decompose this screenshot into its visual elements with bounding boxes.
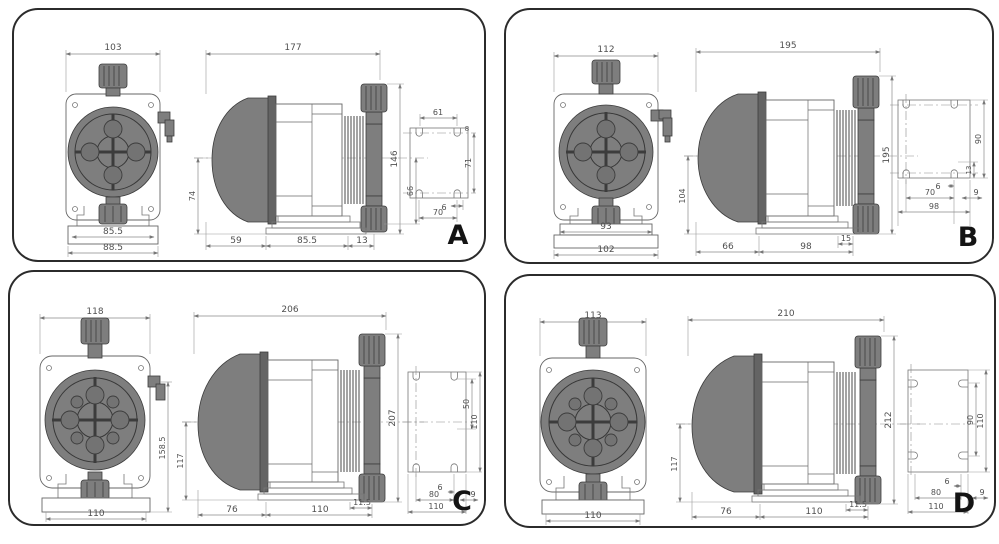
dim-b-bottom-2: 98 [800,242,812,252]
dim-d-plate-hole-offset: 6 [944,477,949,486]
dim-b-side-height: 195 [882,146,892,163]
dim-d-foot-offset: 11.5 [849,500,867,509]
dim-b-plate-width: 98 [929,202,939,211]
dim-a-plate-top: 61 [433,108,443,117]
dim-b-side-left-height: 104 [678,188,687,203]
dim-a-front-width: 103 [104,43,121,53]
dim-d-side-width: 210 [777,309,794,319]
dim-c-base-width: 110 [87,509,104,519]
dim-b-base-outer: 102 [597,245,614,255]
pump-a-drawing: 103 85.5 88.5 177 [14,10,484,260]
dim-a-bottom-2: 85.5 [297,236,317,246]
dim-b-side-width: 195 [779,41,796,51]
panel-c-letter: C [452,486,472,517]
dim-b-plate-corner-offset: 13 [965,166,973,175]
pump-a-front-view: 103 85.5 88.5 [66,43,174,257]
dim-c-front-width: 118 [86,307,103,317]
panel-b-letter: B [958,222,979,253]
panel-c: 118 158.5 110 206 [8,270,486,526]
pump-a-side-view: 177 59 85.5 13 146 6 [188,43,428,250]
dim-d-plate-outer-height: 110 [976,413,985,428]
dim-a-bottom-3: 13 [356,236,367,246]
dim-b-bottom-1: 66 [722,242,734,252]
dim-b-plate-hole-spacing: 70 [925,188,935,197]
dim-d-side-height: 212 [884,411,894,428]
dim-a-side-inner-height: 66 [406,186,415,196]
panel-d-letter: D [953,488,975,519]
pump-c-front-view: 118 158.5 110 [40,307,172,522]
dim-d-bottom-2: 110 [805,507,822,517]
dim-c-foot-offset: 11.5 [353,498,371,507]
dim-a-base-inner: 85.5 [103,227,123,237]
dim-a-bottom-1: 59 [230,236,242,246]
dim-c-side-width: 206 [281,305,298,315]
dim-a-base-outer: 88.5 [103,243,123,253]
dim-a-side-height: 146 [390,150,400,167]
pump-c-side-view: 206 11.5 76 110 207 [176,305,424,518]
pump-d-mounting-plate: 90 110 6 80 9 110 [900,364,990,514]
panel-a-letter: A [448,220,469,251]
dim-d-plate-side-offset: 9 [979,488,984,497]
pump-d-front-view: 113 110 [540,311,646,525]
dim-a-side-left-height: 74 [188,191,197,201]
dim-d-bottom-1: 76 [720,507,732,517]
dim-c-plate-hole-spacing: 80 [429,490,439,499]
dim-c-plate-inner-height: 50 [462,399,471,409]
dim-d-plate-hole-spacing: 80 [931,488,941,497]
pump-d-drawing: 113 110 210 [506,276,994,526]
dim-d-base-width: 110 [584,511,601,521]
dim-c-side-left-height: 117 [176,453,185,468]
pump-b-mounting-plate: 90 13 6 70 9 98 [890,94,988,226]
dim-a-plate-slot: 8 [465,125,469,133]
dim-a-plate-right: 71 [464,158,473,168]
dim-b-foot-offset: 15 [841,234,851,243]
dim-d-plate-inner-height: 90 [966,415,975,425]
dim-b-plate-side-offset: 9 [973,188,978,197]
pump-b-side-view: 195 15 66 98 195 104 [678,41,918,256]
dim-b-front-width: 112 [597,45,614,55]
dim-a-side-width: 177 [284,43,301,53]
panel-d: 113 110 210 [504,274,996,528]
dim-c-bottom-1: 76 [226,505,238,515]
pump-a-mounting-plate: 61 8 71 6 70 [403,108,476,222]
panel-b: 112 93 102 195 [504,8,994,264]
dim-a-plate-hole-spacing: 70 [433,208,443,217]
dim-b-base-inner: 93 [600,222,611,232]
dim-c-plate-outer-height: 110 [470,414,479,429]
pump-b-drawing: 112 93 102 195 [506,10,992,262]
pump-d-side-view: 210 11.5 76 110 212 [670,309,920,520]
pump-b-front-view: 112 93 102 [554,45,672,259]
dim-d-side-left-height: 117 [670,456,679,471]
dim-b-plate-height: 90 [974,134,983,144]
dim-c-bottom-2: 110 [311,505,328,515]
pump-c-drawing: 118 158.5 110 206 [10,272,484,524]
dim-c-side-height: 207 [388,409,398,426]
dim-b-plate-hole-offset: 6 [935,182,940,191]
dim-d-plate-width: 110 [928,502,943,511]
panel-a: 103 85.5 88.5 177 [12,8,486,262]
dim-c-plate-width: 110 [428,502,443,511]
dim-c-front-height: 158.5 [158,437,167,460]
